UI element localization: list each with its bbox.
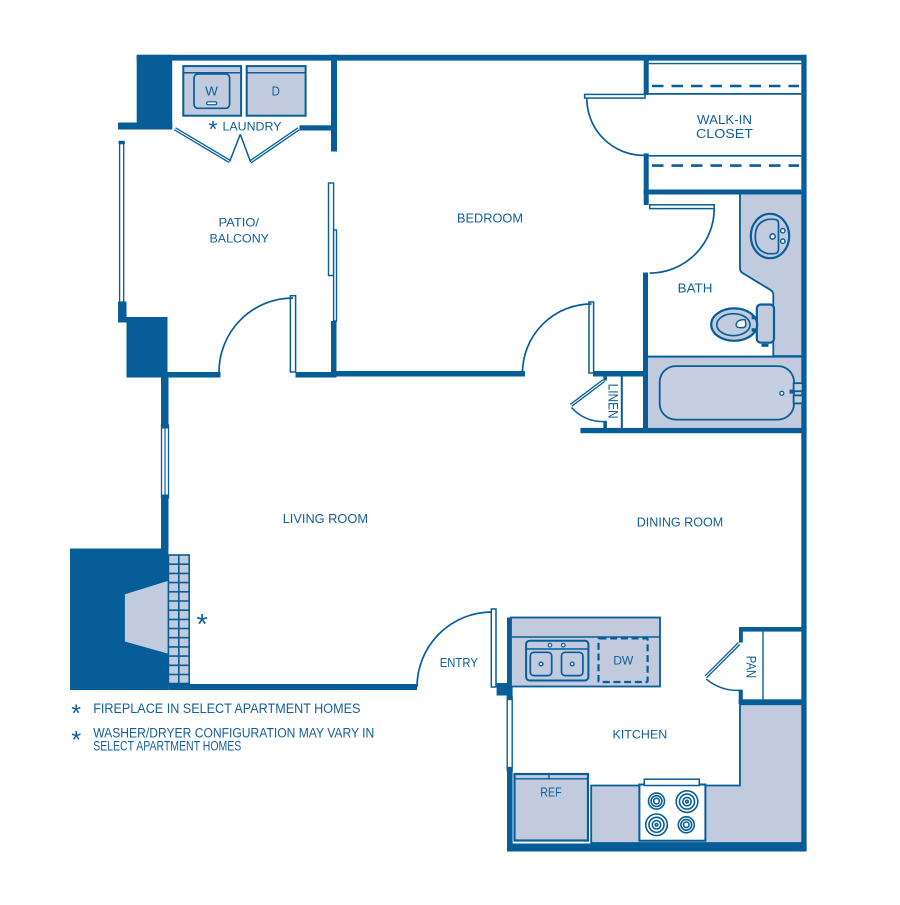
svg-text:LIVING ROOM: LIVING ROOM — [283, 511, 368, 526]
svg-text:LAUNDRY: LAUNDRY — [223, 119, 282, 133]
svg-text:*: * — [197, 609, 208, 641]
svg-text:*: * — [208, 116, 217, 142]
svg-text:WALK-IN: WALK-IN — [697, 112, 752, 127]
svg-text:*: * — [71, 727, 81, 755]
svg-text:LINEN: LINEN — [604, 384, 620, 419]
svg-text:CLOSET: CLOSET — [696, 126, 753, 141]
svg-text:REF: REF — [540, 786, 562, 800]
svg-text:W: W — [205, 83, 218, 98]
svg-text:PATIO/: PATIO/ — [219, 216, 260, 230]
svg-text:BATH: BATH — [678, 281, 713, 296]
svg-text:PAN: PAN — [743, 656, 759, 678]
svg-text:BALCONY: BALCONY — [210, 232, 270, 246]
svg-text:DW: DW — [613, 654, 633, 668]
svg-text:D: D — [272, 83, 280, 98]
svg-text:DINING ROOM: DINING ROOM — [637, 514, 724, 529]
svg-text:KITCHEN: KITCHEN — [613, 728, 668, 742]
svg-text:SELECT APARTMENT HOMES: SELECT APARTMENT HOMES — [93, 738, 241, 754]
svg-text:BEDROOM: BEDROOM — [457, 211, 523, 226]
svg-text:*: * — [71, 700, 81, 728]
svg-text:ENTRY: ENTRY — [440, 656, 479, 670]
svg-text:FIREPLACE IN SELECT APARTMENT: FIREPLACE IN SELECT APARTMENT HOMES — [93, 701, 360, 717]
